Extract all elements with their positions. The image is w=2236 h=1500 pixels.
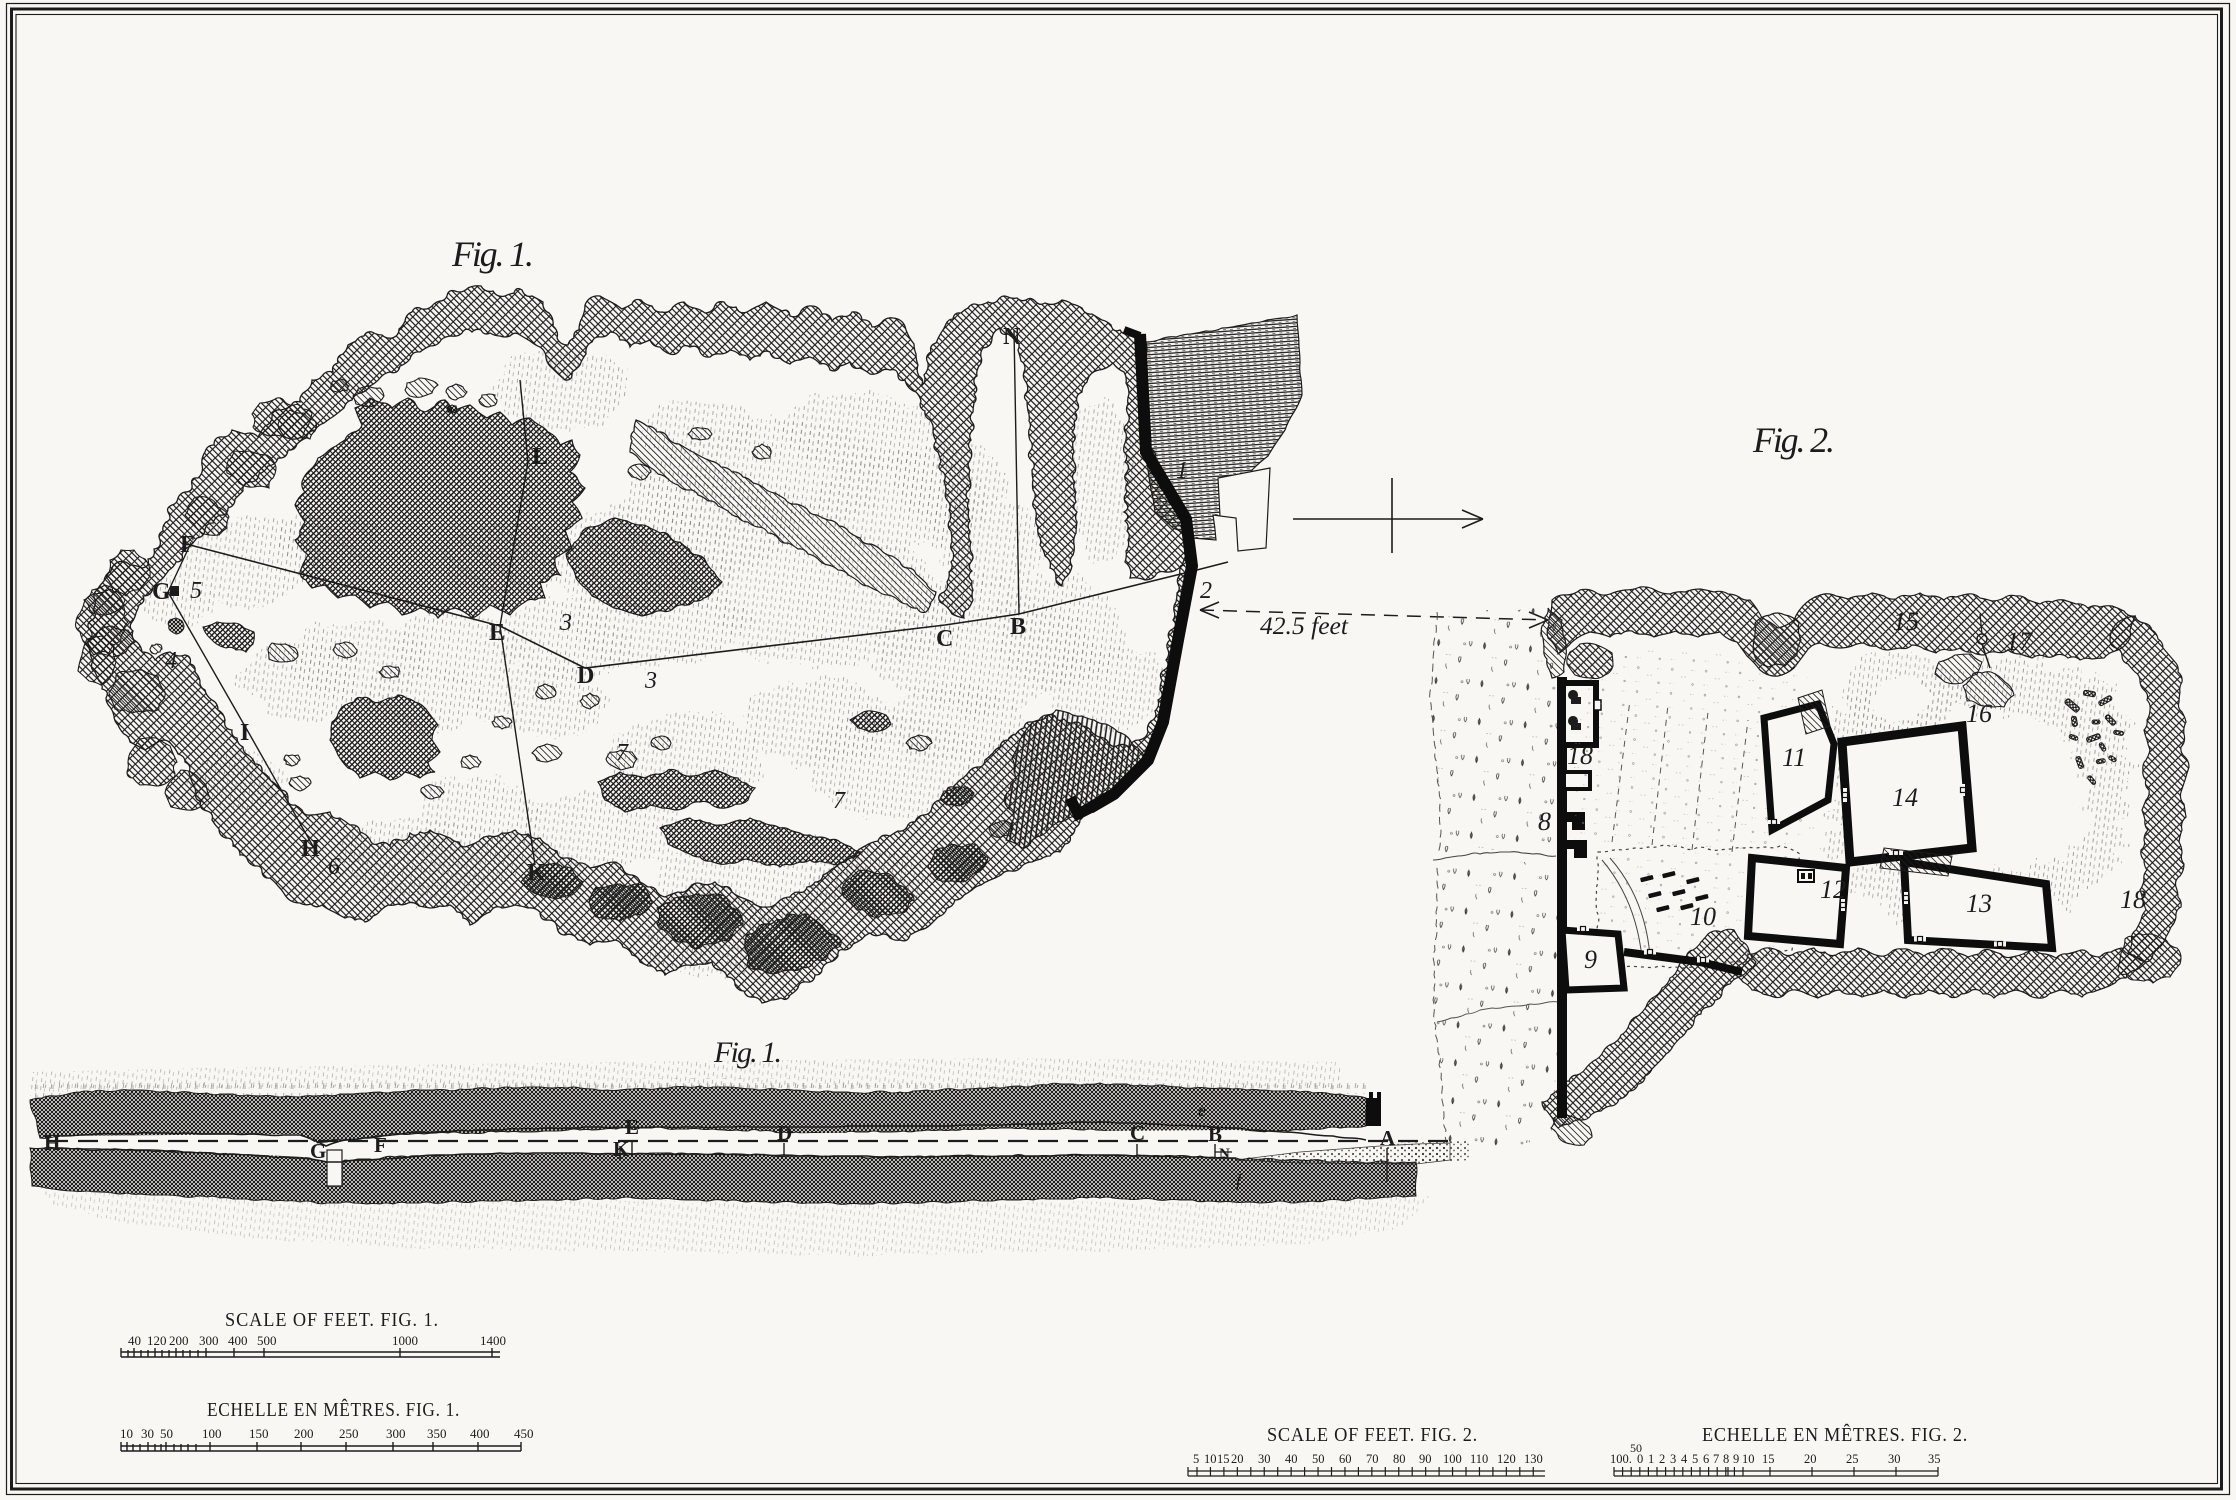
svg-text:100.: 100. (1610, 1452, 1632, 1466)
svg-text:C: C (936, 626, 953, 652)
svg-text:50: 50 (1312, 1452, 1325, 1466)
svg-text:H: H (44, 1131, 60, 1155)
svg-text:60: 60 (1339, 1452, 1352, 1466)
svg-text:N: N (1003, 324, 1021, 350)
svg-text:H: H (301, 836, 320, 862)
svg-text:15: 15 (1893, 607, 1919, 636)
svg-text:3: 3 (559, 610, 572, 636)
svg-text:4: 4 (165, 648, 177, 674)
svg-text:42.5 feet: 42.5 feet (1260, 613, 1349, 640)
svg-text:25: 25 (1846, 1452, 1859, 1466)
svg-text:100: 100 (1443, 1452, 1462, 1466)
svg-text:2: 2 (1200, 578, 1212, 604)
svg-text:20: 20 (1231, 1452, 1244, 1466)
svg-text:40: 40 (128, 1333, 141, 1348)
svg-text:B: B (1208, 1122, 1222, 1146)
svg-text:30: 30 (1888, 1452, 1901, 1466)
svg-text:450: 450 (514, 1426, 534, 1441)
svg-text:E: E (489, 620, 505, 646)
svg-text:11: 11 (1782, 743, 1806, 772)
svg-text:G: G (152, 579, 171, 605)
svg-text:20: 20 (1804, 1452, 1817, 1466)
svg-text:D: D (777, 1121, 792, 1145)
svg-text:K: K (527, 860, 546, 886)
svg-text:18: 18 (1567, 741, 1593, 770)
svg-text:120: 120 (147, 1333, 167, 1348)
svg-text:17: 17 (2006, 627, 2033, 656)
svg-text:30: 30 (1258, 1452, 1271, 1466)
svg-text:35: 35 (1928, 1452, 1941, 1466)
svg-text:50: 50 (160, 1426, 173, 1441)
svg-text:13: 13 (1966, 889, 1992, 918)
svg-text:300: 300 (386, 1426, 406, 1441)
svg-text:300: 300 (199, 1333, 219, 1348)
svg-text:5: 5 (1193, 1452, 1199, 1466)
svg-text:e: e (1198, 1100, 1206, 1120)
svg-text:SCALE OF FEET. FIG. 1.: SCALE OF FEET. FIG. 1. (225, 1309, 439, 1331)
svg-text:1000: 1000 (392, 1333, 418, 1348)
svg-text:12: 12 (1820, 875, 1846, 904)
svg-text:250: 250 (339, 1426, 359, 1441)
svg-text:15: 15 (1762, 1452, 1775, 1466)
svg-text:400: 400 (228, 1333, 248, 1348)
svg-text:7: 7 (1713, 1452, 1719, 1466)
svg-text:B: B (1010, 614, 1026, 640)
svg-text:15: 15 (1217, 1452, 1230, 1466)
svg-text:9: 9 (1584, 945, 1597, 974)
svg-text:200: 200 (169, 1333, 189, 1348)
svg-text:1400: 1400 (480, 1333, 506, 1348)
svg-text:200: 200 (294, 1426, 314, 1441)
svg-text:90: 90 (1419, 1452, 1432, 1466)
svg-text:Fig. 2.: Fig. 2. (1752, 420, 1835, 460)
svg-text:7: 7 (616, 740, 629, 766)
svg-text:10: 10 (120, 1426, 133, 1441)
svg-text:130: 130 (1524, 1452, 1543, 1466)
svg-text:N: N (1219, 1146, 1230, 1162)
svg-text:6: 6 (1703, 1452, 1709, 1466)
svg-text:9: 9 (1733, 1452, 1739, 1466)
svg-text:8: 8 (1723, 1452, 1729, 1466)
svg-text:100: 100 (202, 1426, 222, 1441)
svg-text:10: 10 (1204, 1452, 1217, 1466)
svg-text:Fig. 1.: Fig. 1. (451, 234, 534, 274)
svg-text:ECHELLE EN MÊTRES. FIG. 1.: ECHELLE EN MÊTRES. FIG. 1. (207, 1398, 460, 1421)
svg-text:D: D (577, 663, 594, 689)
svg-text:E: E (625, 1115, 639, 1139)
svg-text:50: 50 (1630, 1441, 1642, 1455)
svg-text:1: 1 (1648, 1452, 1654, 1466)
svg-text:18: 18 (2120, 885, 2146, 914)
svg-text:5: 5 (190, 578, 202, 604)
svg-text:3: 3 (644, 668, 657, 694)
svg-text:C: C (1130, 1121, 1145, 1145)
svg-text:I: I (240, 720, 249, 746)
svg-text:8: 8 (1538, 807, 1551, 836)
svg-text:6: 6 (328, 854, 340, 880)
svg-text:40: 40 (1285, 1452, 1298, 1466)
svg-text:400: 400 (470, 1426, 490, 1441)
svg-text:350: 350 (427, 1426, 447, 1441)
svg-text:10: 10 (1742, 1452, 1755, 1466)
svg-text:F: F (374, 1133, 387, 1157)
svg-text:10: 10 (1690, 902, 1716, 931)
svg-text:80: 80 (1393, 1452, 1406, 1466)
svg-text:7: 7 (833, 788, 846, 814)
svg-text:A: A (1380, 1126, 1396, 1150)
svg-text:120: 120 (1497, 1452, 1516, 1466)
svg-text:14: 14 (1892, 783, 1918, 812)
svg-text:110: 110 (1470, 1452, 1488, 1466)
svg-text:G: G (310, 1139, 326, 1163)
svg-text:F: F (180, 532, 195, 558)
svg-text:3: 3 (1670, 1452, 1676, 1466)
svg-text:L: L (532, 444, 548, 470)
svg-text:5: 5 (1692, 1452, 1698, 1466)
svg-text:70: 70 (1366, 1452, 1379, 1466)
svg-text:30: 30 (141, 1426, 154, 1441)
svg-text:4: 4 (1681, 1452, 1688, 1466)
svg-text:ECHELLE EN MÊTRES. FIG. 2.: ECHELLE EN MÊTRES. FIG. 2. (1702, 1423, 1968, 1446)
svg-text:2: 2 (1659, 1452, 1665, 1466)
svg-text:150: 150 (249, 1426, 269, 1441)
svg-text:500: 500 (257, 1333, 277, 1348)
svg-text:K: K (613, 1137, 630, 1161)
svg-text:SCALE OF FEET. FIG. 2.: SCALE OF FEET. FIG. 2. (1267, 1424, 1478, 1446)
svg-text:16: 16 (1966, 699, 1992, 728)
